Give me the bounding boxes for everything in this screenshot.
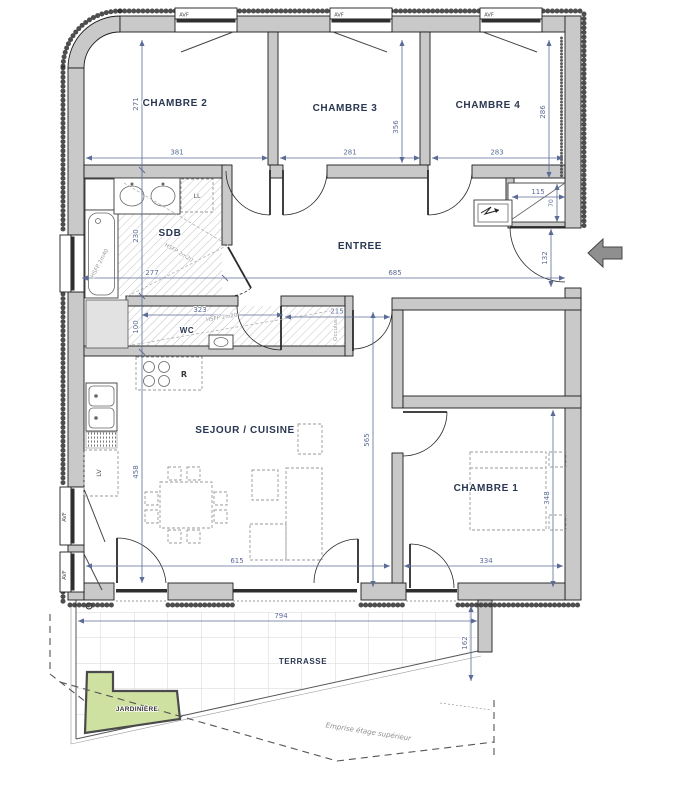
dim-334: 334: [479, 557, 493, 565]
floor-plan: CHAMBRE 2 CHAMBRE 3 CHAMBRE 4 ENTREE SDB…: [0, 0, 686, 800]
room-label-jardiniere: JARDINIÈRE: [116, 704, 159, 713]
room-label-chambre-1: CHAMBRE 1: [454, 483, 519, 494]
fridge-label: R: [181, 370, 187, 379]
dim-794: 794: [274, 612, 288, 620]
dim-70: 70: [548, 199, 555, 207]
cooktop: [136, 357, 202, 390]
room-label-chambre-4: CHAMBRE 4: [456, 100, 521, 111]
occulus-label: Occulus: [333, 319, 339, 341]
dim-230: 230: [132, 229, 140, 242]
door-chambre4: [428, 170, 472, 215]
dim-348: 348: [543, 491, 551, 504]
dim-458: 458: [132, 465, 140, 478]
corner-wall: [68, 16, 120, 68]
room-label-sdb: SDB: [159, 228, 182, 239]
drainer: [86, 432, 117, 448]
dim-215: 215: [330, 308, 343, 316]
dim-100: 100: [132, 320, 140, 333]
door-terrace-left: [117, 538, 166, 583]
shower: [85, 179, 118, 210]
entrance-arrow-icon: [588, 239, 622, 267]
room-label-entree: ENTREE: [338, 241, 382, 252]
dim-381: 381: [170, 149, 183, 157]
dim-281: 281: [343, 149, 356, 157]
dim-132: 132: [541, 251, 549, 264]
door-chambre1: [403, 412, 447, 456]
dining-set: [145, 467, 227, 543]
double-sink-vanity: [114, 178, 180, 214]
dim-277: 277: [145, 269, 158, 277]
room-label-wc: WC: [180, 326, 195, 335]
kitchen-sink: [86, 383, 117, 431]
toilet: [209, 335, 233, 349]
dishwasher-label: LV: [95, 469, 103, 477]
floor-plan-page: CHAMBRE 2 CHAMBRE 3 CHAMBRE 4 ENTREE SDB…: [0, 0, 686, 800]
duct: [86, 300, 128, 348]
door-chambre3: [283, 170, 327, 215]
door-occulus: [353, 310, 392, 351]
room-label-terrasse: TERRASSE: [279, 657, 327, 666]
washing-machine-label: LL: [193, 192, 201, 200]
room-label-sejour: SEJOUR / CUISINE: [195, 425, 295, 436]
window-label-avf-3: AVF: [484, 13, 494, 19]
dim-286: 286: [539, 105, 547, 119]
door-sdb: [228, 247, 251, 296]
emprise-label: Emprise étage supérieur: [325, 721, 413, 743]
window-label-avf-1: AVF: [179, 13, 189, 19]
dim-271: 271: [132, 97, 140, 110]
door-terrace-right: [314, 539, 358, 583]
room-label-chambre-2: CHAMBRE 2: [143, 98, 208, 109]
door-entrance: [510, 227, 565, 282]
dim-685: 685: [388, 269, 401, 277]
dim-356: 356: [392, 120, 400, 134]
window-label-avf-2: AVF: [334, 13, 344, 19]
room-label-chambre-3: CHAMBRE 3: [313, 103, 378, 114]
dim-565: 565: [363, 433, 371, 446]
window-label-avf-5: AVF: [62, 570, 68, 580]
window-label-avf-4: AVF: [62, 512, 68, 522]
terrace-wall: [478, 600, 492, 652]
sofa-set: [250, 424, 322, 560]
dim-323: 323: [193, 306, 206, 314]
door-chambre2: [226, 170, 270, 215]
dim-115: 115: [531, 188, 544, 196]
electrical-panel: [474, 200, 512, 226]
dim-283: 283: [490, 149, 503, 157]
dim-162: 162: [461, 636, 469, 649]
dim-615: 615: [230, 557, 243, 565]
